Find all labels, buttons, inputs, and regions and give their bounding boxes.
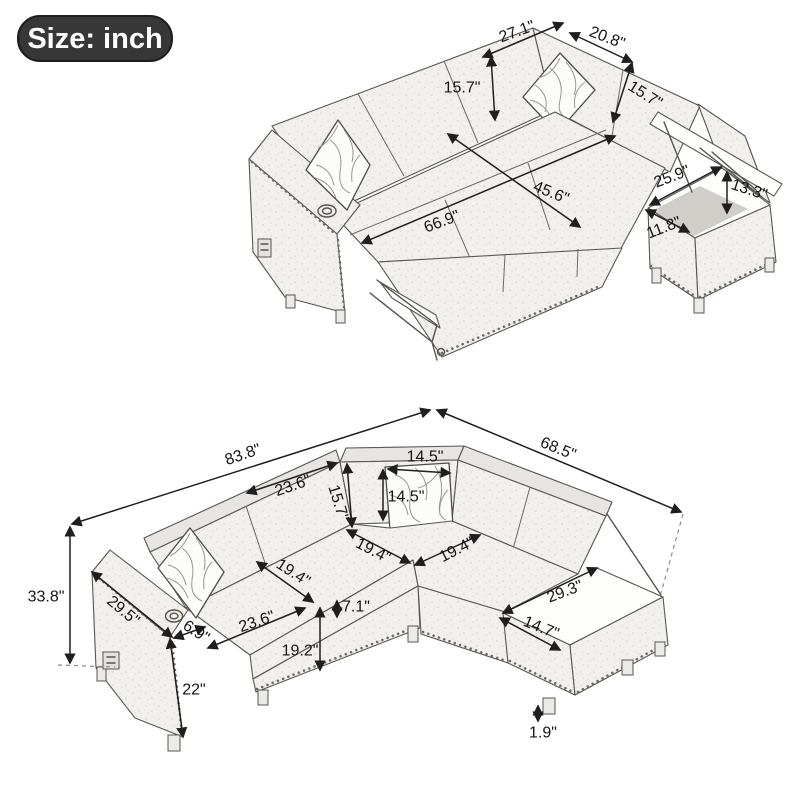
sofa-leg [408,626,418,642]
usb-charging-ports [258,239,271,257]
dim-back-height-left: 15.7" [444,80,481,97]
dim-back-right-width: 20.8" [587,23,627,52]
chaise-leg [652,268,661,283]
dim-pillow-width: 14.5" [407,449,444,466]
chaise-leg [543,698,555,714]
size-unit-badge: Size: inch [18,16,172,61]
usb-charging-ports [103,652,119,669]
sleeper-view: 27.1" 20.8" 15.7" 15.7" 45.6" 66.9" 25.9… [249,18,782,360]
sofa-leg [258,690,268,705]
sofa-back-corner [340,446,464,462]
arm-leg [286,295,295,308]
sofa-view: 83.8" 68.5" 33.8" 23.6" 15.7" 14.5" 14.5… [28,410,683,751]
dim-leg-height: 1.9" [529,725,557,742]
dim-total-height: 33.8" [28,589,65,606]
depth-guide [661,514,683,593]
dim-seat-height: 19.2" [282,643,319,660]
product-dimension-diagram: Size: inch [0,0,800,800]
chaise-leg [622,660,633,675]
chaise-leg [765,258,774,272]
chaise-leg [694,298,704,313]
diagram-canvas: Size: inch [0,0,800,800]
size-unit-label: Size: inch [27,23,162,55]
dim-total-depth: 68.5" [538,434,579,464]
dim-cushion-thickness: 7.1" [342,599,370,616]
chaise-leg [655,642,665,656]
dim-arm-height: 22" [182,682,205,699]
arm-leg [168,735,180,751]
arm-leg [336,310,345,323]
dim-pillow-height: 14.5" [388,489,425,506]
